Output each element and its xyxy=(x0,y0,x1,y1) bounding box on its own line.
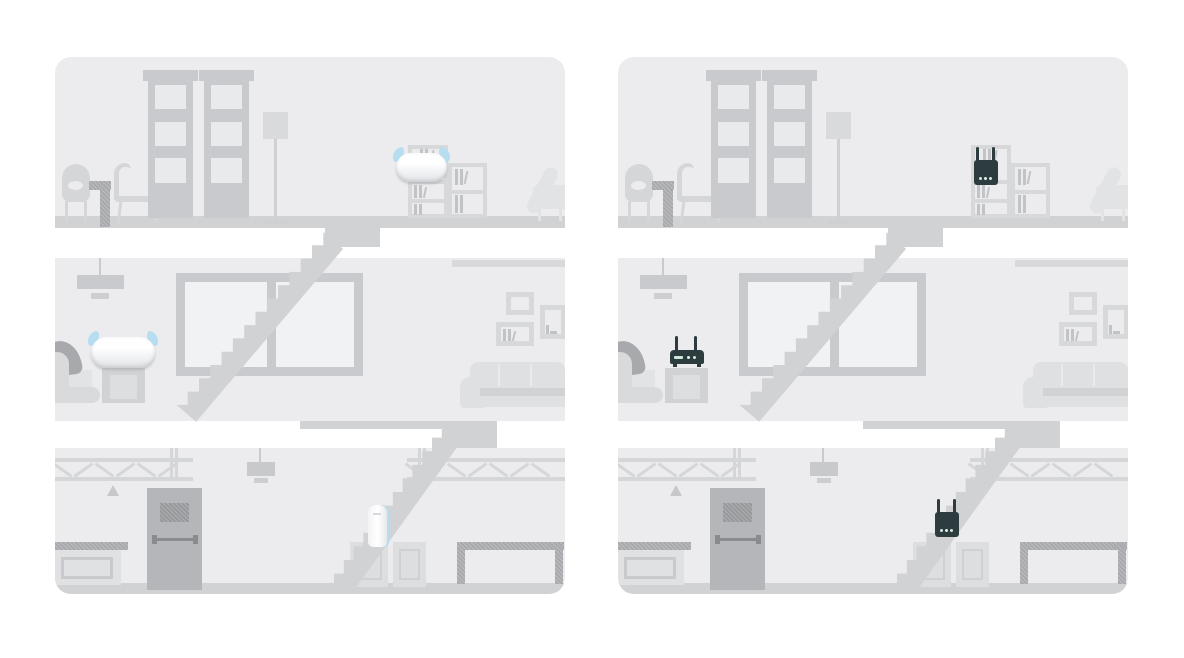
shell-chair xyxy=(625,164,653,202)
shell-chair xyxy=(62,164,90,202)
panel-door-cap xyxy=(762,70,817,81)
ceiling-truss-right-diagonal xyxy=(1094,462,1114,477)
ceiling-truss-right-top-chord xyxy=(407,458,565,462)
door-panel-inset xyxy=(774,122,805,146)
book xyxy=(414,185,417,198)
book xyxy=(1109,325,1112,334)
ceiling-truss-left-diagonal xyxy=(679,462,699,477)
ceiling-truss-right-diagonal xyxy=(405,462,425,477)
side-table xyxy=(652,181,674,190)
door-panel-inset xyxy=(718,158,749,183)
window-mullion xyxy=(830,273,839,376)
book xyxy=(546,325,549,334)
ceiling-truss-right-diagonal xyxy=(1073,462,1093,477)
workbench-panel xyxy=(624,557,676,579)
shelf-line xyxy=(412,199,444,203)
metal-table-top xyxy=(1020,542,1127,550)
shelf-line xyxy=(975,199,1007,203)
garage-door xyxy=(710,488,765,590)
armchair-arm xyxy=(55,387,100,403)
ceiling-truss-right-diagonal xyxy=(531,462,551,477)
ceiling-truss-right-diagonal xyxy=(447,462,467,477)
book xyxy=(419,204,422,215)
couch-base xyxy=(480,396,565,407)
bottom-floor-room xyxy=(618,448,1128,594)
top-floor-room xyxy=(618,57,1128,228)
book xyxy=(550,331,557,334)
book xyxy=(503,329,506,341)
pendant-lamp-diffuser xyxy=(817,478,831,483)
pendant-lamp-shade xyxy=(77,275,124,289)
book xyxy=(982,185,985,198)
couch-cushion-seam xyxy=(1093,364,1095,386)
workbench-panel xyxy=(61,557,113,579)
door-push-bar-cap xyxy=(715,535,720,544)
side-table-leg xyxy=(663,190,673,227)
top-floor-room xyxy=(55,57,565,228)
ceiling-truss-right-diagonal xyxy=(489,462,509,477)
door-panel-inset xyxy=(155,122,186,146)
wire-chair-back xyxy=(677,163,694,200)
book xyxy=(1113,331,1120,334)
book xyxy=(1018,169,1021,185)
door-push-bar-cap xyxy=(193,535,198,544)
book xyxy=(455,195,458,213)
book xyxy=(1023,195,1026,213)
chair-back-cutout xyxy=(631,181,646,190)
door-panel-inset xyxy=(774,158,805,183)
pendant-lamp-diffuser xyxy=(254,478,268,483)
device-label-mark xyxy=(373,513,381,515)
ceiling-strip xyxy=(452,260,565,267)
book xyxy=(460,169,463,185)
book xyxy=(1071,329,1074,341)
door-panel-inset xyxy=(211,158,242,183)
stair-landing-block xyxy=(888,228,943,247)
metal-table-leg xyxy=(457,550,465,584)
router-antenna-icon xyxy=(694,336,697,351)
couch-cushion-seam xyxy=(498,364,500,386)
truss-post xyxy=(738,448,741,480)
ceiling-truss-left-diagonal xyxy=(658,462,678,477)
floor-lamp-base xyxy=(265,220,286,224)
door-panel-inset xyxy=(718,85,749,109)
door-push-bar-cap xyxy=(152,535,157,544)
stair-landing-extension xyxy=(863,421,1013,429)
ceiling-truss-right-diagonal xyxy=(1031,462,1051,477)
lounge-chair-leg xyxy=(559,209,562,221)
truss-post xyxy=(170,448,173,480)
truss-post xyxy=(175,448,178,480)
door-panel-inset xyxy=(155,158,186,183)
led-indicator xyxy=(687,356,690,359)
ceiling-truss-left-diagonal xyxy=(74,462,94,477)
storage-box-flap xyxy=(399,549,420,580)
ceiling-truss-left-diagonal xyxy=(700,462,720,477)
book xyxy=(414,204,417,215)
pendant-lamp-cord xyxy=(99,258,101,275)
door-panel-inset xyxy=(155,85,186,109)
stair-landing-extension xyxy=(300,421,450,429)
mesh-node-device xyxy=(396,153,447,182)
ceiling-truss-left-diagonal xyxy=(618,462,635,477)
door-push-bar xyxy=(152,538,198,541)
floor-lamp-pole xyxy=(837,139,840,220)
router-foot xyxy=(673,364,677,367)
book xyxy=(1066,329,1069,341)
lounge-chair-seat xyxy=(533,185,565,209)
door-window xyxy=(160,503,189,522)
router-foot xyxy=(697,364,701,367)
panel-door-cap xyxy=(706,70,761,81)
metal-table-leg xyxy=(1118,550,1126,584)
pendant-lamp-shade xyxy=(247,462,275,476)
router-extender-home-panel xyxy=(618,57,1128,594)
truss-post xyxy=(418,448,421,480)
ceiling-truss-right-diagonal xyxy=(1010,462,1030,477)
ceiling-truss-right-bottom-chord xyxy=(970,477,1128,481)
book xyxy=(1018,195,1021,213)
mesh-node-tower-device xyxy=(368,505,389,547)
led-indicator xyxy=(950,529,953,532)
warning-cone xyxy=(670,485,682,496)
truss-post xyxy=(986,448,989,480)
led-indicator xyxy=(945,529,948,532)
ceiling-truss-right-diagonal xyxy=(510,462,530,477)
ceiling-truss-right-diagonal xyxy=(468,462,488,477)
stair-landing-block xyxy=(325,228,380,247)
book xyxy=(460,195,463,213)
couch-cushion-seam xyxy=(1061,364,1063,386)
chair-back-cutout xyxy=(68,181,83,190)
wifi-comparison-illustration xyxy=(0,0,1184,658)
workbench-top xyxy=(55,542,128,550)
book xyxy=(508,329,511,341)
stair-landing-block xyxy=(443,421,497,448)
chair-leg xyxy=(84,201,87,222)
book xyxy=(982,204,985,215)
book xyxy=(1023,169,1026,185)
door-panel-inset xyxy=(211,85,242,109)
range-extender-device xyxy=(974,160,998,185)
led-indicator xyxy=(984,177,987,180)
panel-door-cap xyxy=(199,70,254,81)
window-mullion xyxy=(267,273,276,376)
book xyxy=(419,185,422,198)
pendant-lamp-shade xyxy=(640,275,687,289)
metal-table-leg xyxy=(555,550,563,584)
floor-surface xyxy=(618,583,1128,594)
side-table-leg xyxy=(100,190,110,227)
wall-cube-shelf xyxy=(1069,292,1097,315)
ceiling-truss-right-top-chord xyxy=(970,458,1128,462)
book xyxy=(455,169,458,185)
router-device xyxy=(670,350,704,364)
armchair-arm xyxy=(618,387,663,403)
door-push-bar xyxy=(715,538,761,541)
led-indicator xyxy=(989,177,992,180)
chair-leg xyxy=(628,201,631,222)
bottom-floor-room xyxy=(55,448,565,594)
mesh-wifi-home-panel xyxy=(55,57,565,594)
warning-cone xyxy=(107,485,119,496)
book xyxy=(977,185,980,198)
floor-lamp-pole xyxy=(274,139,277,220)
led-indicator xyxy=(674,356,683,359)
couch-cushion-seam xyxy=(530,364,532,386)
led-indicator xyxy=(693,356,696,359)
door-panel-inset xyxy=(774,85,805,109)
door-panel-inset xyxy=(718,122,749,146)
metal-table-leg xyxy=(1020,550,1028,584)
pendant-lamp-diffuser xyxy=(91,293,109,299)
storage-box-flap xyxy=(356,549,382,580)
couch-seat xyxy=(480,388,565,396)
lounge-chair-leg xyxy=(1101,209,1104,221)
storage-box-flap xyxy=(919,549,945,580)
door-window xyxy=(723,503,752,522)
book xyxy=(977,204,980,215)
stair-landing-block xyxy=(1006,421,1060,448)
wire-chair-back xyxy=(114,163,131,200)
ceiling-truss-left-diagonal xyxy=(55,462,72,477)
metal-table-top xyxy=(457,542,564,550)
floor-lamp-shade xyxy=(263,112,288,139)
couch-seat xyxy=(1043,388,1128,396)
ceiling-truss-right-diagonal xyxy=(989,462,1009,477)
truss-post xyxy=(733,448,736,480)
pendant-lamp-shade xyxy=(810,462,838,476)
ceiling-strip xyxy=(1015,260,1128,267)
floor-surface xyxy=(618,216,1128,228)
wall-cube-shelf xyxy=(506,292,534,315)
ceiling-truss-left-diagonal xyxy=(116,462,136,477)
workbench-top xyxy=(618,542,691,550)
pedestal-table-inset xyxy=(673,375,700,399)
ceiling-truss-right-diagonal xyxy=(968,462,988,477)
led-indicator xyxy=(979,177,982,180)
floor-lamp-shade xyxy=(826,112,851,139)
chair-leg xyxy=(647,201,650,222)
garage-door xyxy=(147,488,202,590)
ceiling-truss-right-bottom-chord xyxy=(407,477,565,481)
ceiling-truss-left-diagonal xyxy=(637,462,657,477)
pendant-lamp-cord xyxy=(822,448,824,462)
panel-door-cap xyxy=(143,70,198,81)
floor-surface xyxy=(55,216,565,228)
ceiling-truss-left-diagonal xyxy=(95,462,115,477)
lounge-chair-leg xyxy=(1122,209,1125,221)
range-extender-device xyxy=(935,512,959,537)
shelf-line xyxy=(452,190,483,194)
led-indicator xyxy=(940,529,943,532)
truss-post xyxy=(981,448,984,480)
door-panel-inset xyxy=(211,122,242,146)
mesh-node-device xyxy=(91,337,155,368)
pendant-lamp-diffuser xyxy=(654,293,672,299)
lounge-chair-leg xyxy=(538,209,541,221)
truss-post xyxy=(423,448,426,480)
storage-box-flap xyxy=(962,549,983,580)
couch-base xyxy=(1043,396,1128,407)
chair-leg xyxy=(65,201,68,222)
pedestal-table-inset xyxy=(110,375,137,399)
door-push-bar-cap xyxy=(756,535,761,544)
floor-lamp-base xyxy=(828,220,849,224)
shelf-line xyxy=(1015,190,1046,194)
side-table xyxy=(89,181,111,190)
ceiling-truss-right-diagonal xyxy=(1052,462,1072,477)
floor-surface xyxy=(55,583,565,594)
router-antenna-icon xyxy=(675,336,678,351)
ceiling-truss-right-diagonal xyxy=(426,462,446,477)
ceiling-truss-left-diagonal xyxy=(137,462,157,477)
lounge-chair-seat xyxy=(1096,185,1128,209)
pendant-lamp-cord xyxy=(662,258,664,275)
pendant-lamp-cord xyxy=(259,448,261,462)
